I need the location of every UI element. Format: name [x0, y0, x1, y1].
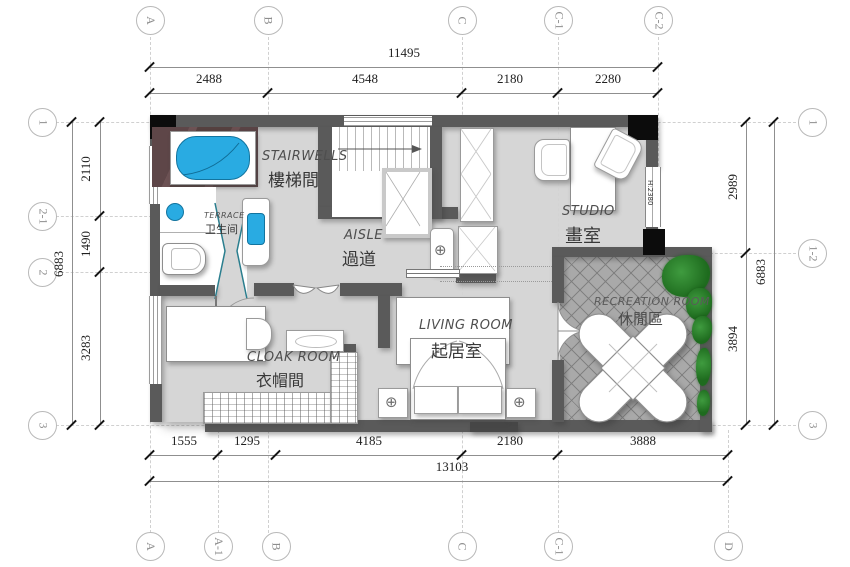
ceiling-dashed-line [440, 281, 552, 282]
wall-south-block [470, 422, 518, 432]
crosshair-icon: ⊕ [434, 243, 447, 258]
wall-recreation-west-upper [552, 257, 564, 303]
axis-bubble-label: 2 [35, 270, 50, 276]
wall-recreation-west-lower [552, 360, 564, 422]
axis-bubble-label: 3 [35, 423, 50, 429]
bathtub [176, 136, 250, 180]
axis-bubble-label: A [143, 542, 158, 551]
column [643, 229, 665, 255]
room-label-recreation-zh: 休閒區 [618, 308, 663, 329]
double-door-icon [292, 284, 340, 299]
crosshair-icon: ⊕ [513, 395, 526, 410]
dim-label: 2180 [497, 71, 523, 87]
room-label-living-en: LIVING ROOM [419, 318, 513, 333]
axis-bubble-label: 3 [805, 423, 820, 429]
dim-line [774, 122, 775, 425]
floor-plan-drawing: ABCC-1C-2AA-1BCC-1D12-12311-231149524884… [0, 0, 850, 567]
room-label-studio-zh: 畫室 [565, 222, 601, 248]
room-label-stairwell-en: STAIRWELLS [262, 149, 348, 164]
room-label-recreation-en: RECREATION ROOM [594, 295, 710, 308]
wardrobe-south [203, 392, 333, 424]
grid-line [710, 253, 796, 254]
axis-bubble-label: C-1 [551, 12, 566, 30]
axis-bubble-B: B [254, 6, 283, 35]
wall-aisle-south-2 [254, 283, 294, 296]
axis-bubble-C-2: C-2 [644, 6, 673, 35]
axis-bubble-label: C-1 [551, 538, 566, 556]
studio-chair-left [534, 139, 570, 181]
axis-bubble-label: 1 [805, 120, 820, 126]
dim-line [100, 122, 101, 425]
room-label-studio-en: STUDIO [562, 204, 615, 219]
dim-label: 2110 [78, 156, 94, 182]
axis-bubble-label: B [269, 542, 284, 550]
toilet [162, 243, 206, 275]
axis-bubble-label: 1 [35, 120, 50, 126]
cabinet-tall [460, 128, 494, 222]
grid-line [56, 272, 152, 273]
axis-bubble-label: C [455, 542, 470, 550]
dim-label: 1295 [234, 433, 260, 449]
room-label-stairwell-zh: 樓梯間 [268, 166, 319, 191]
dim-label: 1555 [171, 433, 197, 449]
dim-label: 3894 [725, 326, 741, 352]
dim-label: 1490 [78, 231, 94, 257]
axis-bubble-label: 2-1 [35, 209, 50, 225]
axis-bubble-label: A [143, 16, 158, 25]
room-label-bathroom-en: TERRACE [204, 211, 245, 220]
vanity-basin [247, 213, 265, 245]
dim-line [746, 122, 747, 425]
dim-line [150, 455, 728, 456]
room-label-aisle-en: AISLE [344, 228, 383, 243]
dim-label: 3283 [78, 335, 94, 361]
nightstand-left: ⊕ [378, 388, 408, 418]
axis-bubble-label: D [721, 542, 736, 551]
axis-bubble-1: 1 [28, 108, 57, 137]
window-north [344, 116, 432, 126]
crosshair-icon: ⊕ [385, 395, 398, 410]
window-height-label: H:2380 [646, 180, 654, 205]
axis-bubble-label: C [455, 16, 470, 24]
stair-landing [332, 171, 384, 217]
axis-bubble-2-1: 2-1 [28, 202, 57, 231]
axis-bubble-label: A-1 [211, 537, 226, 556]
axis-bubble-1-2: 1-2 [798, 239, 827, 268]
dim-label: 2180 [497, 433, 523, 449]
dim-label: 2280 [595, 71, 621, 87]
cloak-bench [286, 330, 344, 352]
axis-bubble-label: B [261, 16, 276, 24]
window-west-2 [149, 296, 162, 384]
room-label-living-zh: 起居室 [431, 337, 482, 362]
aisle-fixture: ⊕ [430, 228, 454, 274]
room-label-bathroom-zh: 卫生间 [205, 221, 238, 237]
room-label-cloak-zh: 衣帽間 [256, 367, 304, 391]
dim-line [150, 93, 658, 94]
wall-stair-west [318, 127, 332, 207]
column [628, 115, 658, 140]
axis-bubble-A: A [136, 6, 165, 35]
stair-direction-arrow [338, 143, 422, 155]
sliding-door-track [406, 269, 460, 278]
pillow [458, 386, 502, 414]
ceiling-dashed-line [440, 266, 552, 267]
axis-bubble-3: 3 [798, 411, 827, 440]
wall-cloak-east [378, 296, 390, 348]
axis-bubble-label: C-2 [651, 12, 666, 30]
dim-label: 2989 [725, 174, 741, 200]
room-label-aisle-zh: 過道 [342, 245, 376, 270]
axis-bubble-A-1: A-1 [204, 532, 233, 561]
dim-label: 4548 [352, 71, 378, 87]
dim-label: 6883 [753, 259, 769, 285]
dim-label: 2488 [196, 71, 222, 87]
dim-label: 11495 [388, 45, 420, 61]
axis-bubble-C: C [448, 6, 477, 35]
cloak-chair [246, 318, 272, 350]
axis-bubble-label: 1-2 [805, 246, 820, 262]
dim-line [150, 67, 658, 68]
dim-line [72, 122, 73, 425]
pillow [414, 386, 458, 414]
washbasin [166, 203, 184, 221]
axis-bubble-C-1: C-1 [544, 532, 573, 561]
axis-bubble-3: 3 [28, 411, 57, 440]
wall-aisle-south-3 [340, 283, 402, 296]
dim-label: 13103 [436, 459, 469, 475]
room-label-cloak-en: CLOAK ROOM [247, 350, 340, 365]
dim-line [150, 481, 728, 482]
dim-label: 4185 [356, 433, 382, 449]
axis-bubble-1: 1 [798, 108, 827, 137]
axis-bubble-D: D [714, 532, 743, 561]
nightstand-right: ⊕ [506, 388, 536, 418]
elevator [382, 168, 432, 238]
dim-label: 6883 [51, 251, 67, 277]
axis-bubble-C-1: C-1 [544, 6, 573, 35]
grid-line [56, 216, 152, 217]
axis-bubble-B: B [262, 532, 291, 561]
axis-bubble-C: C [448, 532, 477, 561]
axis-bubble-A: A [136, 532, 165, 561]
